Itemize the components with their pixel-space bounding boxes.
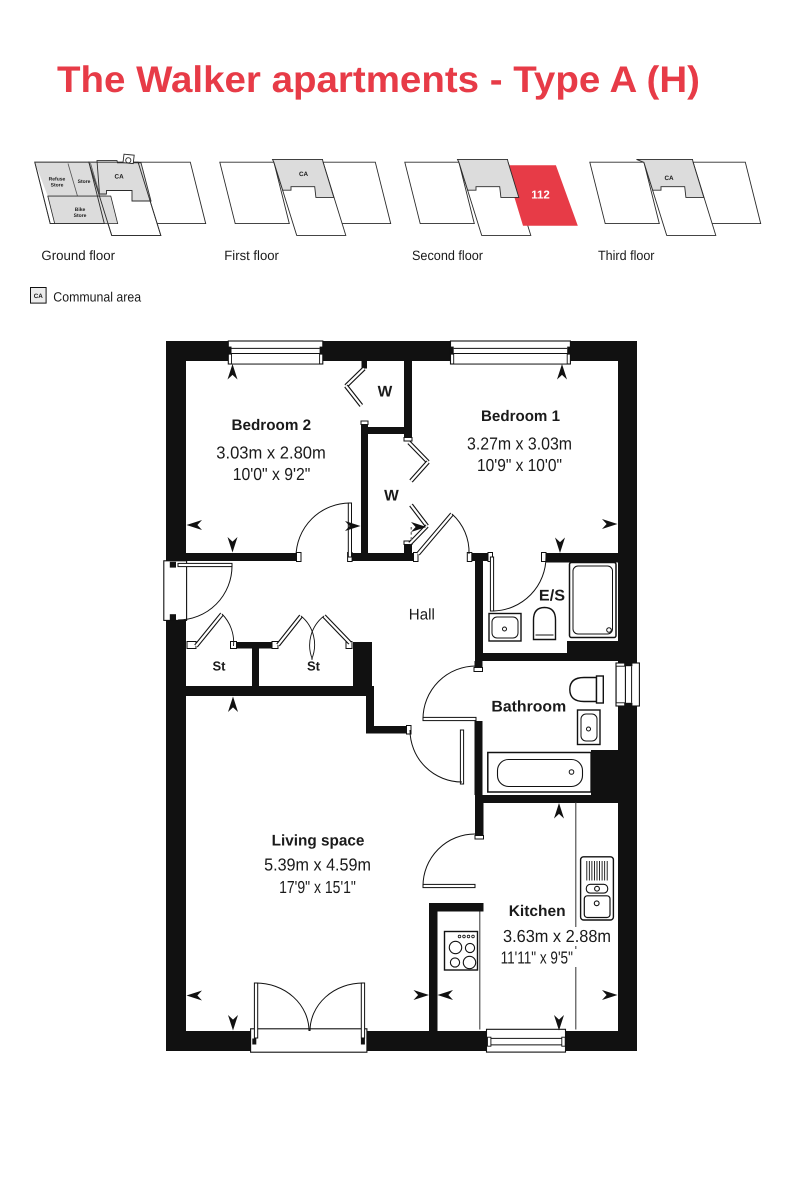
svg-text:Living space: Living space [272,833,365,850]
svg-text:3.03m x 2.80m: 3.03m x 2.80m [216,443,325,463]
svg-text:E/S: E/S [539,588,565,605]
svg-text:Bathroom: Bathroom [491,699,566,716]
svg-text:Bedroom 2: Bedroom 2 [232,417,312,434]
svg-text:The Walker apartments - Type A: The Walker apartments - Type A (H) [57,59,700,100]
svg-text:First floor: First floor [224,248,279,263]
svg-text:W: W [384,488,399,505]
svg-text:17'9" x 15'1": 17'9" x 15'1" [279,877,356,897]
svg-text:Second floor: Second floor [412,248,483,263]
svg-text:Third floor: Third floor [598,248,655,263]
svg-text:Bedroom 1: Bedroom 1 [481,408,560,425]
svg-text:Ground floor: Ground floor [41,248,115,263]
svg-text:CA: CA [34,293,44,300]
svg-text:CA: CA [115,173,125,180]
svg-text:3.27m x 3.03m: 3.27m x 3.03m [467,434,572,454]
svg-text:Store: Store [51,182,64,188]
svg-text:3.63m x 2.88m: 3.63m x 2.88m [503,926,611,946]
svg-text:Store: Store [78,179,91,185]
svg-text:10'0" x 9'2": 10'0" x 9'2" [233,464,310,484]
svg-text:Communal area: Communal area [53,290,141,305]
svg-text:Kitchen: Kitchen [509,903,566,920]
svg-text:Store: Store [74,213,87,219]
svg-text:5.39m x 4.59m: 5.39m x 4.59m [264,855,371,875]
svg-text:CA: CA [664,175,674,182]
svg-text:W: W [378,384,393,401]
svg-text:CA: CA [299,171,309,178]
svg-text:11'11" x 9'5": 11'11" x 9'5" [501,948,573,968]
svg-text:St: St [213,659,227,674]
svg-text:Hall: Hall [409,606,435,623]
svg-text:112: 112 [531,190,550,202]
svg-text:10'9" x 10'0": 10'9" x 10'0" [477,455,562,475]
svg-text:St: St [307,659,321,674]
